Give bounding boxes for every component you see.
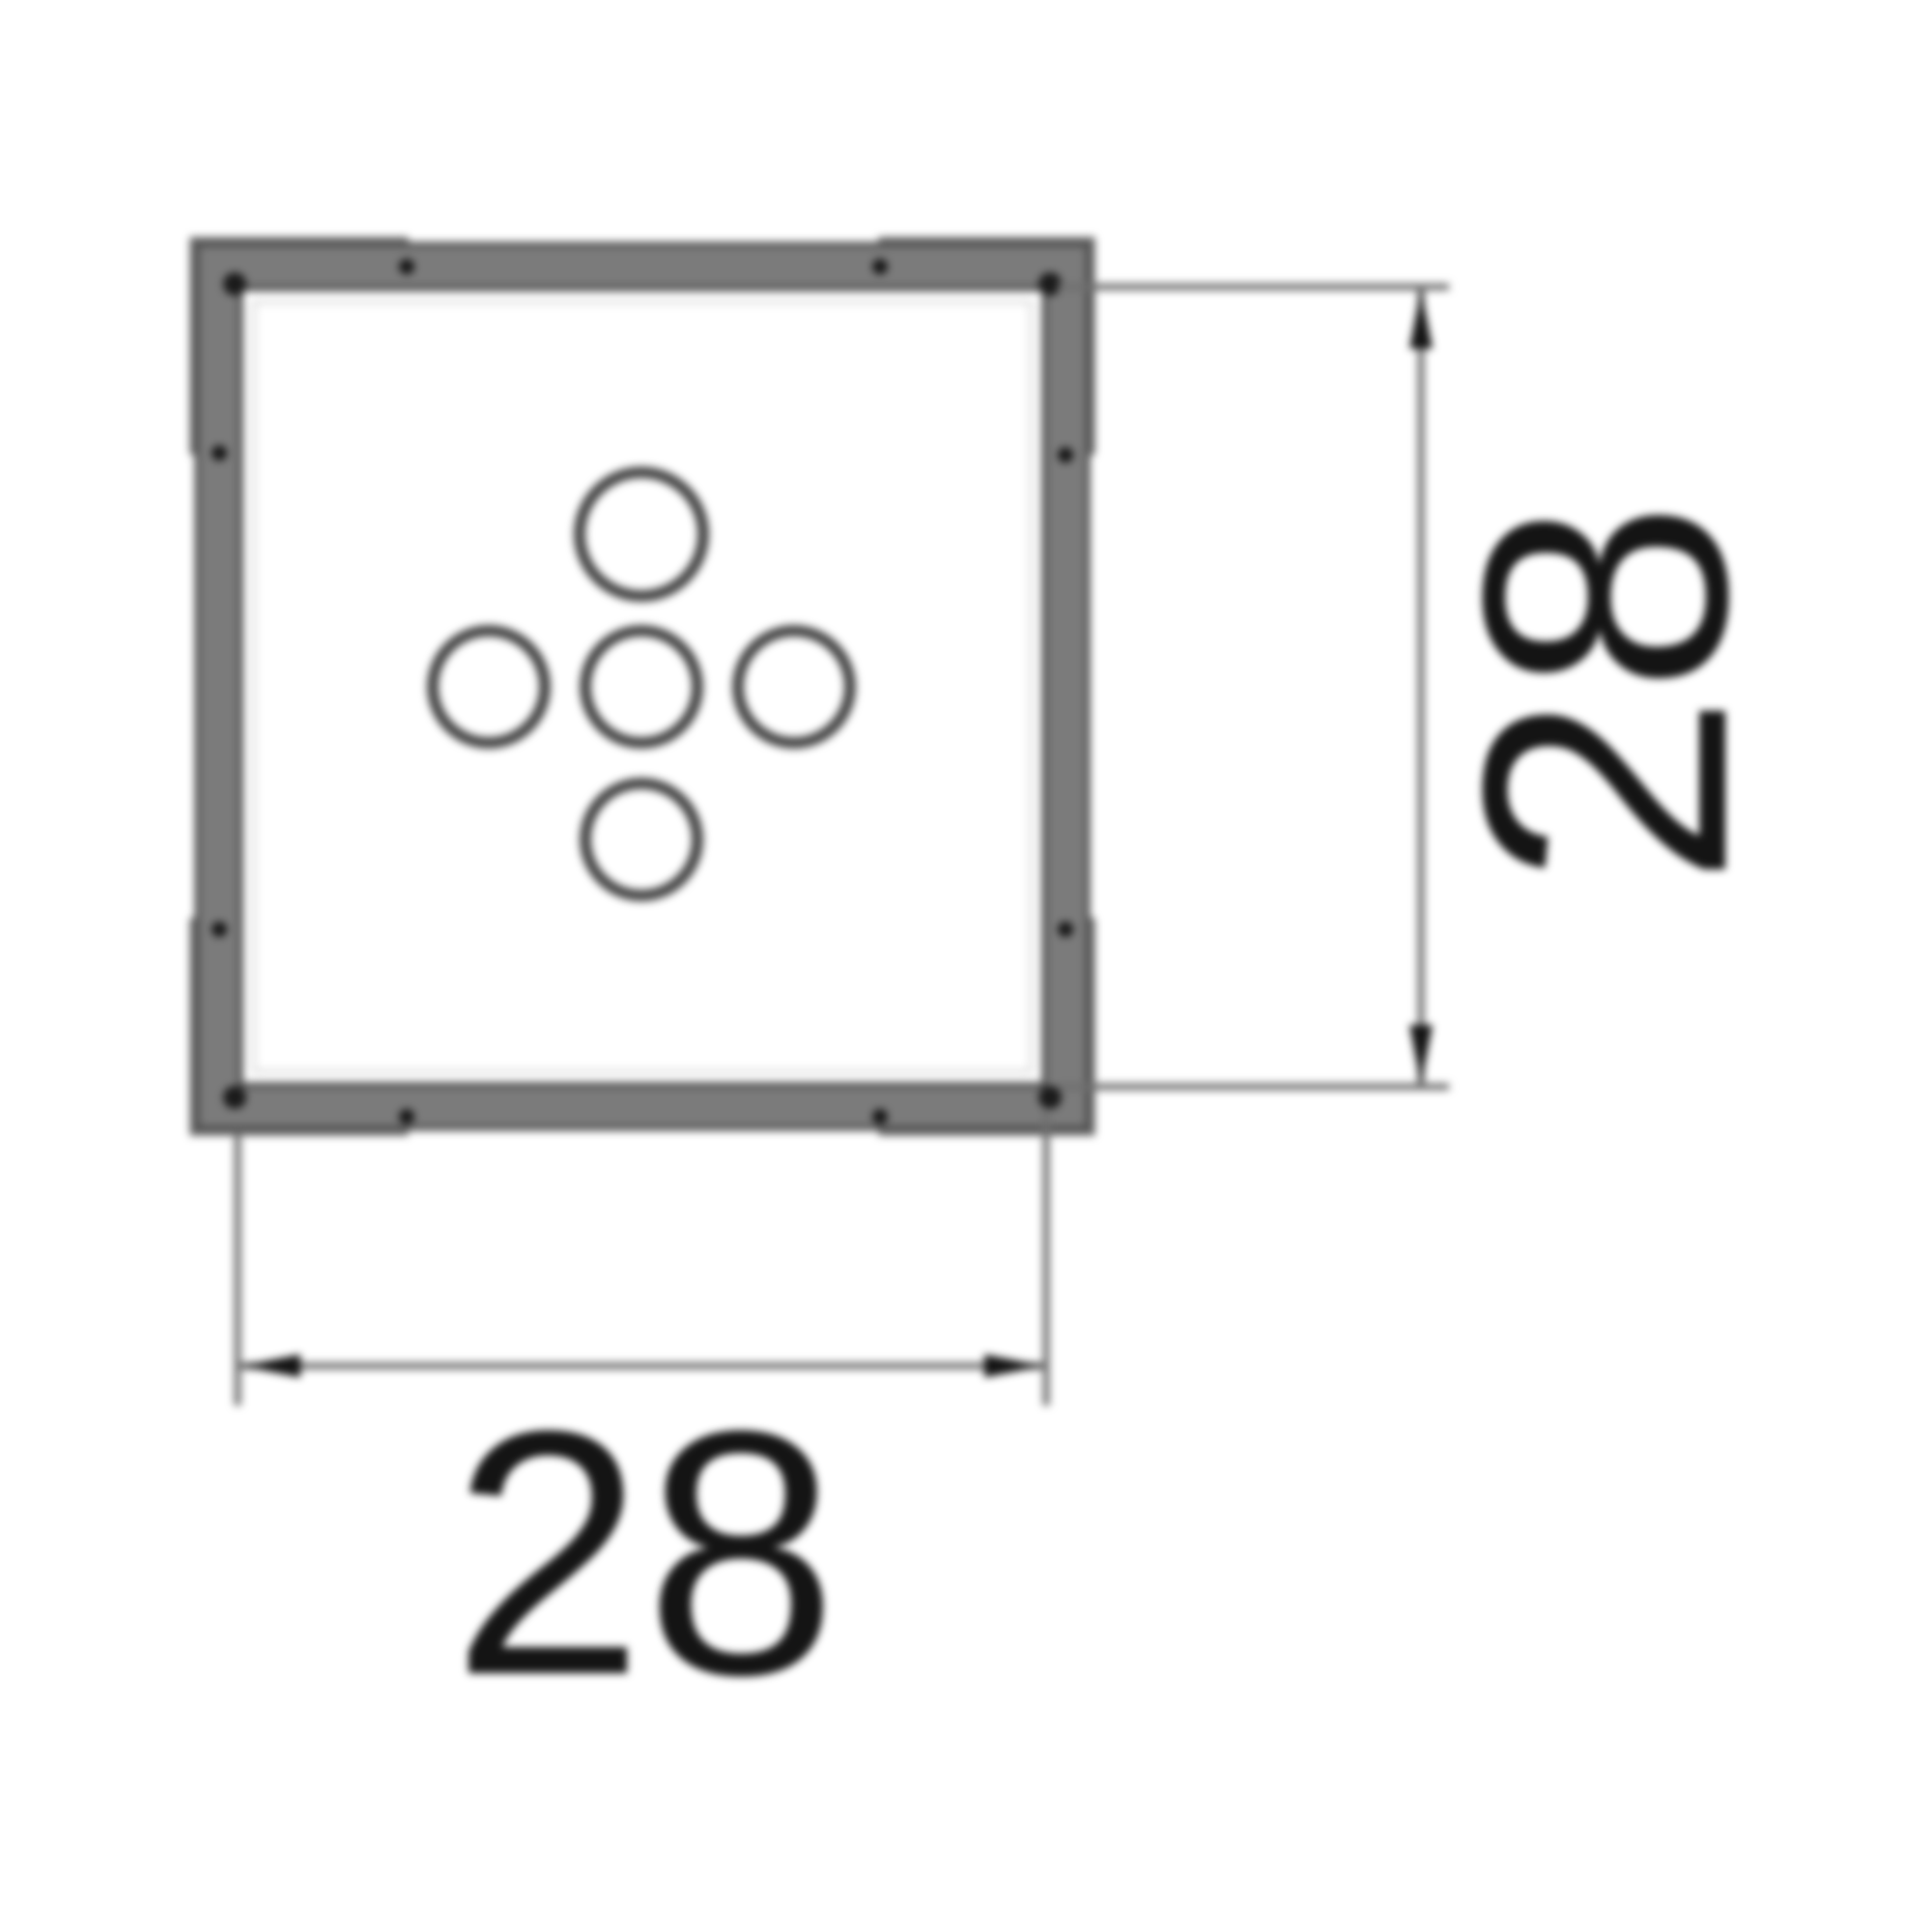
svg-text:28: 28 <box>1411 500 1800 887</box>
svg-text:28: 28 <box>451 1359 838 1747</box>
